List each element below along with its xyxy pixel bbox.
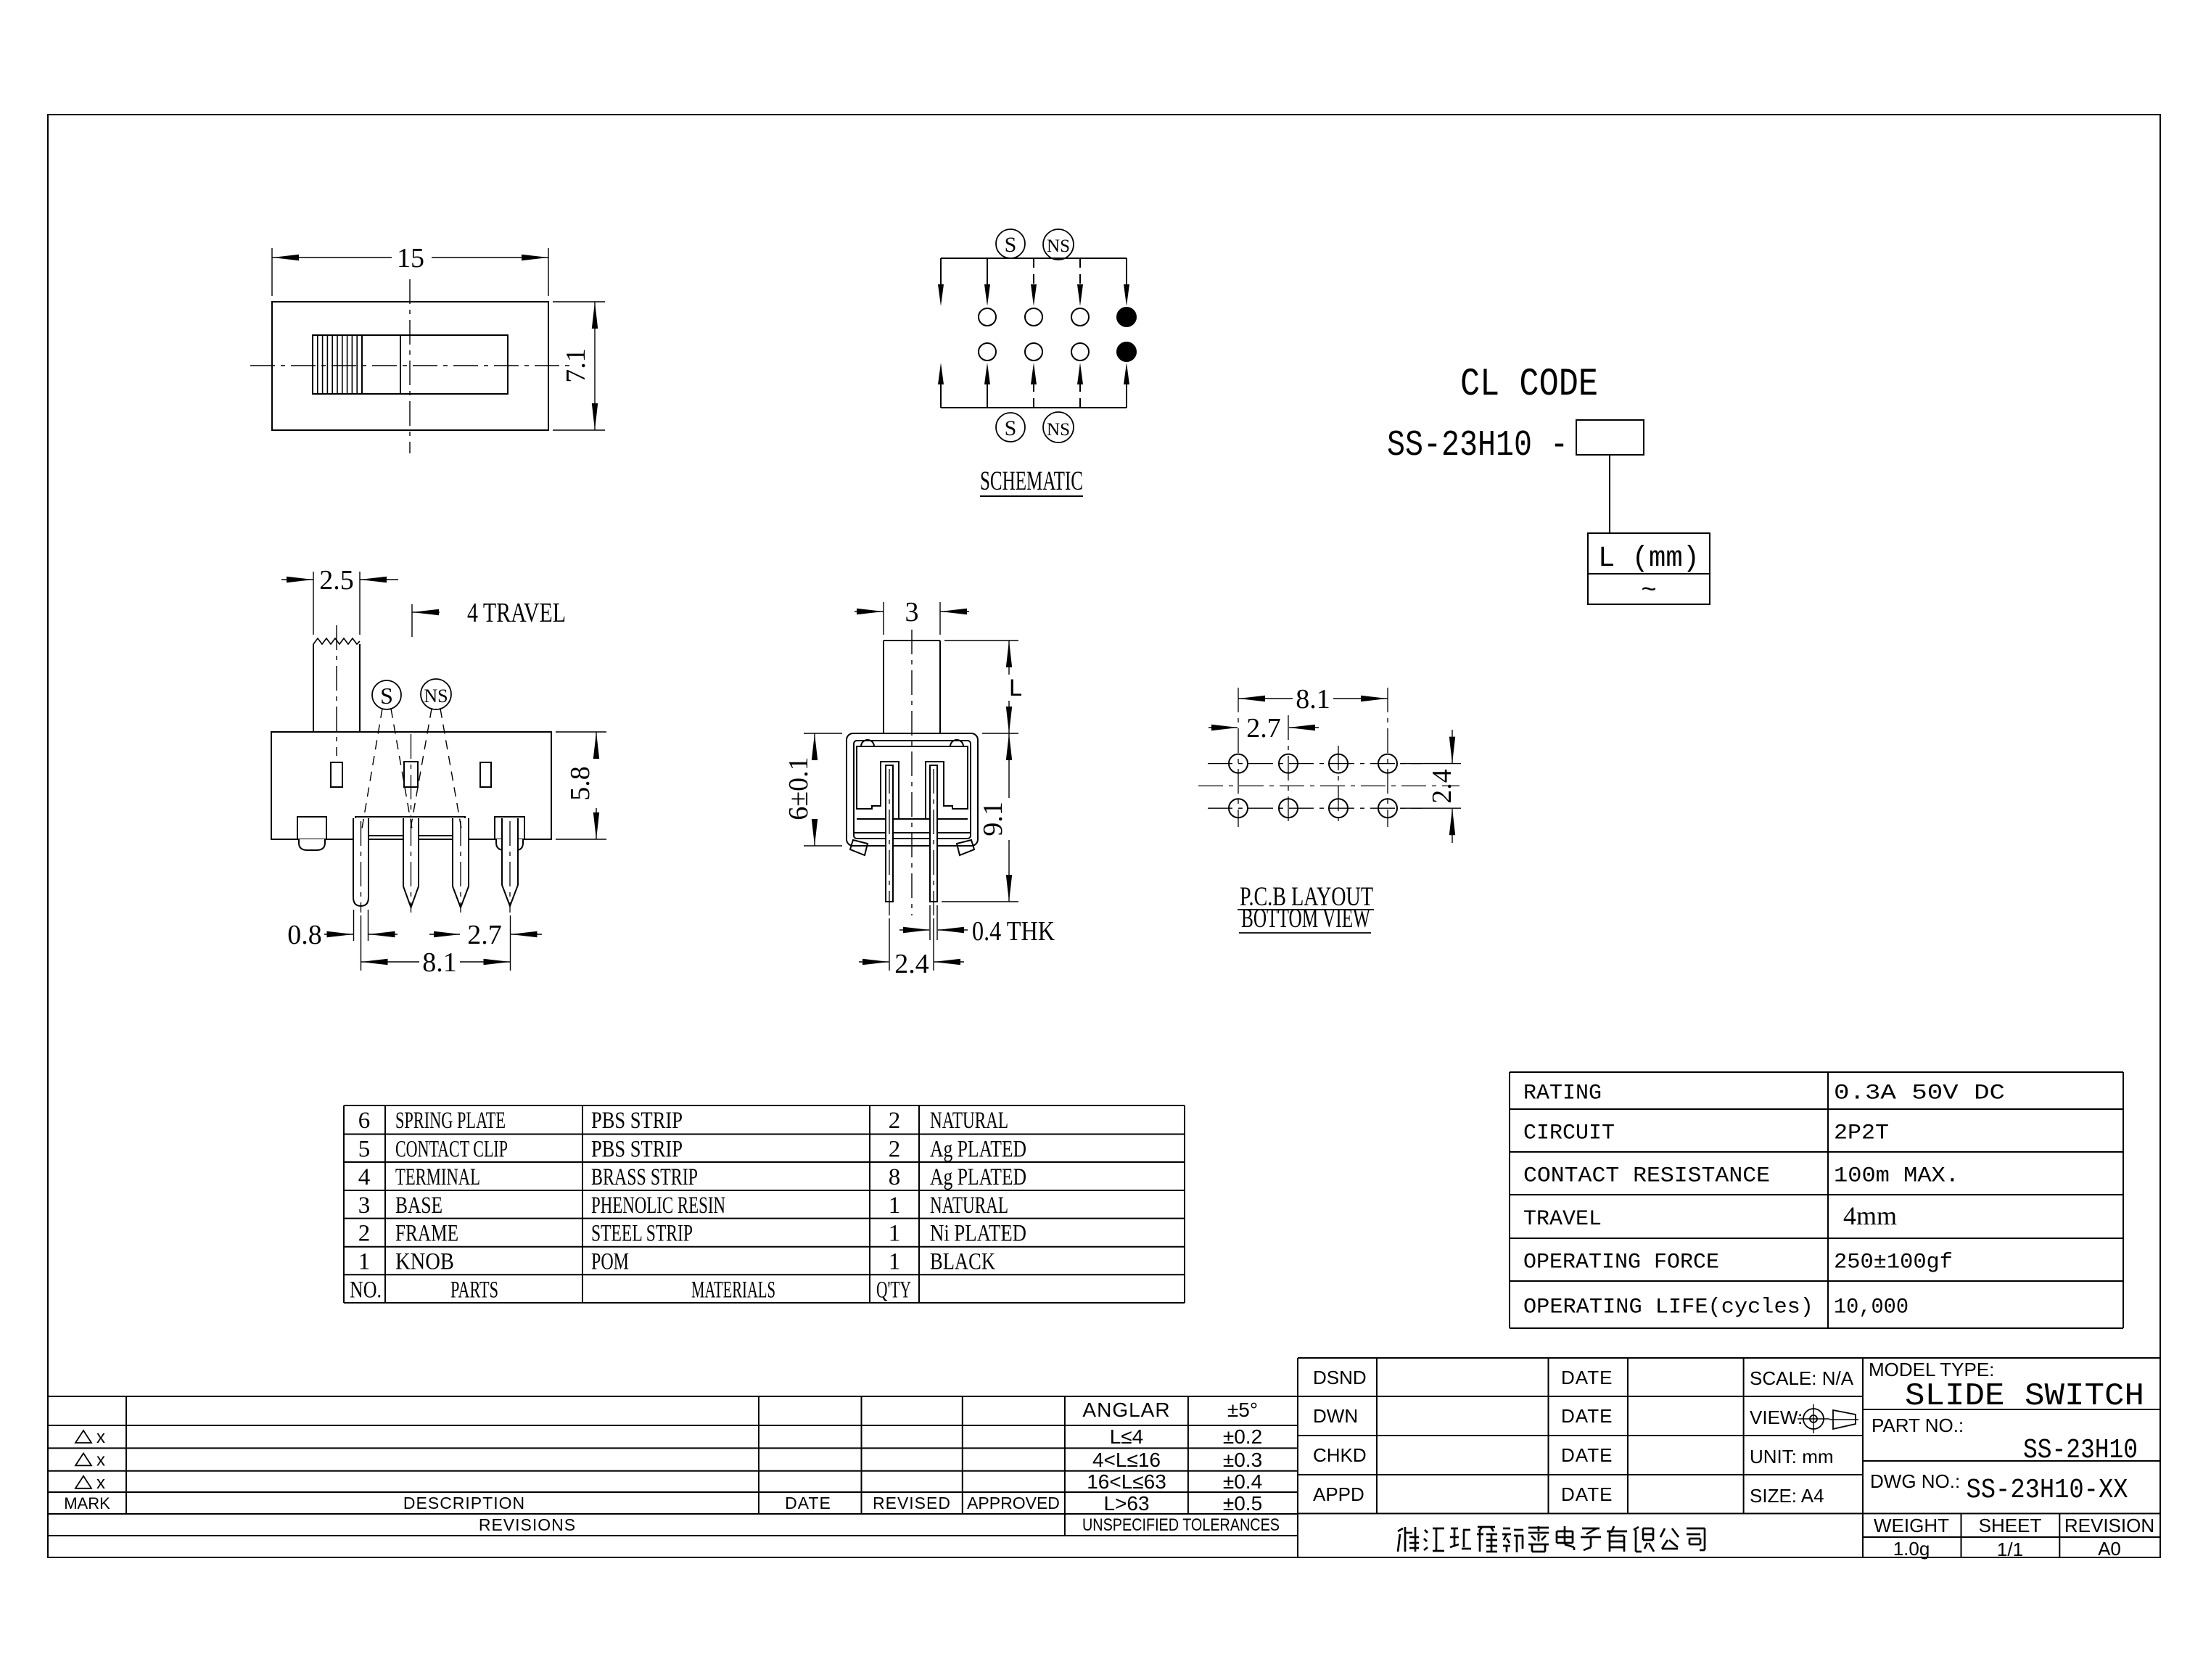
- svg-text:5.8: 5.8: [565, 766, 596, 801]
- svg-text:8.1: 8.1: [1296, 684, 1330, 715]
- svg-text:15: 15: [397, 243, 424, 273]
- svg-text:Ag PLATED: Ag PLATED: [930, 1164, 1026, 1190]
- svg-text:APPROVED: APPROVED: [967, 1494, 1060, 1512]
- svg-text:2: 2: [889, 1137, 901, 1163]
- svg-text:NS: NS: [1047, 420, 1070, 440]
- svg-text:S: S: [1005, 416, 1017, 440]
- svg-text:UNSPECIFIED TOLERANCES: UNSPECIFIED TOLERANCES: [1082, 1515, 1280, 1535]
- svg-text:2.7: 2.7: [467, 920, 502, 950]
- svg-text:DATE: DATE: [1561, 1483, 1613, 1505]
- svg-text:S: S: [1005, 233, 1017, 257]
- svg-text:PART NO.:: PART NO.:: [1872, 1415, 1964, 1436]
- svg-text:CL CODE: CL CODE: [1460, 363, 1598, 407]
- svg-text:4mm: 4mm: [1843, 1201, 1897, 1230]
- svg-text:2.4: 2.4: [1427, 769, 1457, 804]
- svg-text:16<L≤63: 16<L≤63: [1087, 1470, 1166, 1493]
- svg-text:3: 3: [905, 597, 919, 627]
- svg-text:6: 6: [358, 1108, 371, 1134]
- svg-text:BOTTOM VIEW: BOTTOM VIEW: [1241, 904, 1370, 934]
- svg-text:1: 1: [889, 1249, 901, 1275]
- svg-text:CIRCUIT: CIRCUIT: [1523, 1121, 1615, 1146]
- svg-text:BRASS STRIP: BRASS STRIP: [591, 1164, 698, 1190]
- svg-text:Ag PLATED: Ag PLATED: [930, 1137, 1026, 1163]
- svg-text:VIEW:: VIEW:: [1750, 1407, 1803, 1428]
- svg-text:4: 4: [358, 1164, 371, 1190]
- svg-text:DATE: DATE: [1561, 1444, 1613, 1466]
- svg-text:2P2T: 2P2T: [1834, 1121, 1889, 1146]
- svg-text:WEIGHT: WEIGHT: [1874, 1515, 1949, 1536]
- svg-text:BLACK: BLACK: [930, 1249, 995, 1275]
- svg-text:4<L≤16: 4<L≤16: [1092, 1449, 1161, 1471]
- svg-text:x: x: [96, 1450, 105, 1470]
- svg-text:DWN: DWN: [1313, 1405, 1358, 1427]
- svg-text:L (mm): L (mm): [1598, 543, 1700, 575]
- svg-text:FRAME: FRAME: [395, 1221, 458, 1247]
- svg-text:DATE: DATE: [785, 1494, 831, 1512]
- svg-text:DSND: DSND: [1313, 1367, 1367, 1388]
- svg-text:POM: POM: [591, 1249, 629, 1275]
- svg-text:2.7: 2.7: [1246, 713, 1281, 744]
- svg-text:ANGLAR: ANGLAR: [1082, 1399, 1170, 1421]
- svg-text:±0.5: ±0.5: [1223, 1492, 1262, 1515]
- svg-text:MATERIALS: MATERIALS: [691, 1277, 775, 1303]
- svg-text:DATE: DATE: [1561, 1405, 1613, 1427]
- svg-text:10,000: 10,000: [1834, 1296, 1909, 1320]
- svg-text:PBS STRIP: PBS STRIP: [591, 1108, 683, 1134]
- svg-text:CHKD: CHKD: [1313, 1444, 1367, 1466]
- svg-text:APPD: APPD: [1313, 1483, 1364, 1505]
- svg-text:x: x: [96, 1428, 105, 1447]
- svg-text:NS: NS: [1047, 236, 1070, 256]
- svg-text:DATE: DATE: [1561, 1367, 1613, 1388]
- svg-text:Q'TY: Q'TY: [876, 1277, 911, 1303]
- svg-text:1/1: 1/1: [1997, 1539, 2023, 1560]
- svg-text:8.1: 8.1: [422, 947, 457, 978]
- svg-text:L≤4: L≤4: [1110, 1425, 1144, 1448]
- svg-text:SIZE: A4: SIZE: A4: [1750, 1485, 1824, 1507]
- svg-text:SHEET: SHEET: [1979, 1515, 2042, 1536]
- svg-text:NATURAL: NATURAL: [930, 1193, 1008, 1219]
- svg-text:±0.4: ±0.4: [1223, 1470, 1262, 1493]
- svg-text:100m MAX.: 100m MAX.: [1834, 1164, 1959, 1189]
- svg-text:DWG NO.:: DWG NO.:: [1870, 1470, 1960, 1492]
- svg-text:3: 3: [358, 1193, 371, 1219]
- svg-text:7.1: 7.1: [561, 348, 591, 383]
- svg-text:NS: NS: [424, 685, 448, 707]
- svg-text:REVISIONS: REVISIONS: [479, 1515, 576, 1534]
- svg-text:PARTS: PARTS: [450, 1277, 498, 1303]
- svg-text:L: L: [1008, 676, 1023, 704]
- svg-text:CONTACT RESISTANCE: CONTACT RESISTANCE: [1523, 1164, 1770, 1189]
- svg-text:SCALE: N/A: SCALE: N/A: [1750, 1367, 1854, 1389]
- svg-text:BASE: BASE: [395, 1193, 442, 1219]
- svg-text:MARK: MARK: [64, 1494, 110, 1512]
- svg-text:0.4 THK: 0.4 THK: [972, 916, 1055, 947]
- svg-text:±5°: ±5°: [1227, 1399, 1258, 1421]
- svg-text:PHENOLIC RESIN: PHENOLIC RESIN: [591, 1193, 725, 1219]
- svg-text:TRAVEL: TRAVEL: [1523, 1207, 1602, 1232]
- svg-text:SS-23H10: SS-23H10: [2023, 1435, 2138, 1466]
- svg-text:0.8: 0.8: [287, 920, 322, 950]
- svg-text:2.4: 2.4: [894, 949, 929, 979]
- svg-text:SS-23H10-XX: SS-23H10-XX: [1967, 1475, 2128, 1506]
- svg-text:9.1: 9.1: [978, 802, 1008, 836]
- svg-text:REVISED: REVISED: [873, 1494, 951, 1512]
- svg-text:REVISION: REVISION: [2064, 1515, 2154, 1536]
- svg-text:2.5: 2.5: [319, 565, 354, 596]
- svg-text:±0.3: ±0.3: [1223, 1449, 1262, 1471]
- svg-text:5: 5: [358, 1137, 371, 1163]
- svg-text:~: ~: [1641, 576, 1657, 606]
- svg-text:1: 1: [358, 1249, 371, 1275]
- svg-text:OPERATING LIFE(cycles): OPERATING LIFE(cycles): [1523, 1296, 1813, 1320]
- svg-text:OPERATING FORCE: OPERATING FORCE: [1523, 1251, 1719, 1275]
- svg-text:NATURAL: NATURAL: [930, 1108, 1008, 1134]
- svg-text:±0.2: ±0.2: [1223, 1425, 1262, 1448]
- svg-text:2: 2: [889, 1108, 901, 1134]
- svg-text:250±100gf: 250±100gf: [1834, 1251, 1953, 1275]
- svg-text:SS-23H10 -: SS-23H10 -: [1387, 425, 1568, 466]
- svg-text:1: 1: [889, 1193, 901, 1219]
- svg-text:8: 8: [889, 1164, 901, 1190]
- svg-text:SCHEMATIC: SCHEMATIC: [980, 466, 1083, 496]
- svg-text:TERMINAL: TERMINAL: [395, 1164, 480, 1190]
- svg-text:x: x: [96, 1473, 105, 1493]
- svg-text:2: 2: [358, 1221, 371, 1247]
- svg-text:A0: A0: [2098, 1538, 2121, 1560]
- svg-text:S: S: [380, 683, 393, 709]
- svg-text:DESCRIPTION: DESCRIPTION: [403, 1494, 525, 1512]
- svg-text:MODEL TYPE:: MODEL TYPE:: [1869, 1359, 1994, 1380]
- svg-text:L>63: L>63: [1103, 1492, 1149, 1515]
- svg-text:UNIT: mm: UNIT: mm: [1750, 1446, 1834, 1467]
- svg-text:PBS STRIP: PBS STRIP: [591, 1137, 683, 1163]
- svg-text:SPRING PLATE: SPRING PLATE: [395, 1108, 506, 1134]
- svg-text:Ni PLATED: Ni PLATED: [930, 1221, 1026, 1247]
- svg-text:KNOB: KNOB: [395, 1249, 454, 1275]
- svg-text:0.3A 50V DC: 0.3A 50V DC: [1834, 1082, 2005, 1106]
- svg-text:SLIDE SWITCH: SLIDE SWITCH: [1905, 1378, 2144, 1415]
- svg-text:1.0g: 1.0g: [1893, 1538, 1930, 1560]
- svg-text:CONTACT CLIP: CONTACT CLIP: [395, 1137, 508, 1163]
- svg-text:RATING: RATING: [1523, 1082, 1602, 1106]
- svg-text:4 TRAVEL: 4 TRAVEL: [467, 598, 566, 628]
- svg-text:STEEL STRIP: STEEL STRIP: [591, 1221, 693, 1247]
- svg-text:1: 1: [889, 1221, 901, 1247]
- svg-text:6±0.1: 6±0.1: [783, 757, 814, 820]
- svg-text:NO.: NO.: [350, 1277, 382, 1303]
